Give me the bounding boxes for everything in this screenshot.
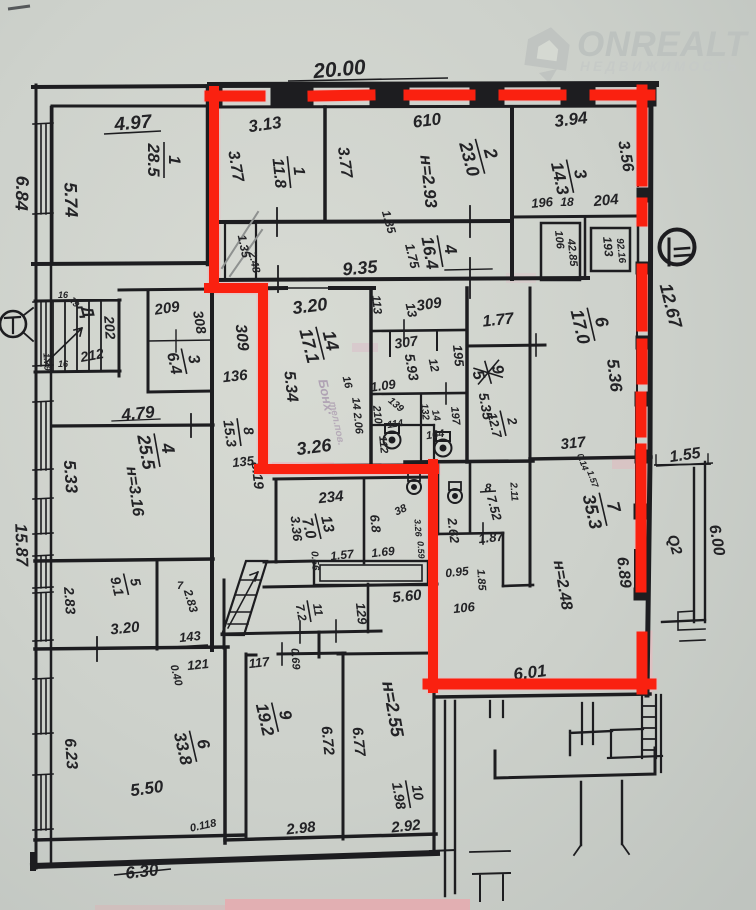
svg-text:106: 106: [452, 599, 476, 616]
svg-text:164: 164: [425, 428, 445, 442]
svg-text:2.92: 2.92: [390, 816, 422, 836]
svg-text:610: 610: [412, 109, 443, 131]
svg-text:3.26: 3.26: [412, 519, 423, 538]
svg-text:9.35: 9.35: [342, 256, 380, 279]
svg-text:НЕДВИЖИМОСТЬ: НЕДВИЖИМОСТЬ: [580, 59, 740, 74]
svg-text:1.85: 1.85: [474, 569, 488, 592]
svg-text:6.77: 6.77: [348, 726, 368, 757]
svg-text:5.33: 5.33: [60, 459, 81, 494]
svg-text:5.60: 5.60: [392, 586, 423, 606]
svg-text:193: 193: [600, 236, 616, 258]
svg-text:0.69: 0.69: [288, 648, 302, 671]
svg-text:5.36: 5.36: [603, 358, 626, 394]
svg-text:18: 18: [560, 195, 574, 209]
svg-text:234: 234: [317, 488, 345, 508]
svg-text:11.8: 11.8: [269, 157, 289, 189]
svg-text:4.79: 4.79: [120, 402, 156, 425]
svg-text:16: 16: [58, 290, 69, 300]
svg-text:1.57: 1.57: [330, 547, 356, 564]
svg-text:5.34: 5.34: [280, 370, 300, 403]
svg-text:1: 1: [290, 166, 308, 177]
svg-text:6.8: 6.8: [367, 514, 384, 534]
svg-text:143: 143: [178, 628, 202, 645]
svg-text:16: 16: [58, 359, 69, 369]
svg-text:197: 197: [448, 406, 462, 426]
svg-text:317: 317: [560, 434, 587, 454]
svg-text:204: 204: [592, 191, 620, 210]
svg-text:309: 309: [415, 294, 443, 314]
svg-text:3.94: 3.94: [553, 108, 589, 131]
svg-text:195: 195: [450, 344, 467, 368]
svg-text:6.72: 6.72: [317, 725, 337, 756]
svg-text:196: 196: [531, 194, 555, 211]
svg-text:2.83: 2.83: [61, 586, 79, 616]
svg-text:114: 114: [387, 418, 405, 431]
svg-text:2.11: 2.11: [507, 481, 519, 502]
svg-text:6.23: 6.23: [61, 738, 80, 770]
svg-text:15.87: 15.87: [11, 523, 32, 568]
svg-text:1.87: 1.87: [478, 529, 505, 547]
svg-text:7.2: 7.2: [293, 603, 310, 622]
svg-text:28.5: 28.5: [144, 142, 163, 177]
svg-text:0.59: 0.59: [415, 541, 426, 559]
svg-text:8: 8: [485, 481, 492, 495]
svg-text:1.77: 1.77: [482, 310, 516, 330]
svg-text:6.84: 6.84: [11, 175, 32, 211]
svg-text:210: 210: [370, 404, 384, 425]
svg-text:2.98: 2.98: [285, 818, 317, 838]
svg-text:2.62: 2.62: [445, 516, 463, 544]
svg-text:202: 202: [101, 314, 119, 340]
svg-text:112: 112: [376, 435, 390, 454]
svg-text:132: 132: [418, 403, 431, 421]
svg-text:3.20: 3.20: [291, 294, 328, 318]
svg-text:307: 307: [393, 332, 420, 351]
svg-text:3.36: 3.36: [288, 515, 306, 542]
svg-text:136: 136: [222, 367, 249, 387]
svg-text:106: 106: [552, 230, 566, 250]
svg-text:5.74: 5.74: [60, 182, 81, 218]
svg-text:1: 1: [165, 155, 184, 164]
svg-text:113: 113: [369, 294, 385, 315]
svg-text:129: 129: [353, 602, 370, 626]
svg-text:3.20: 3.20: [110, 618, 141, 638]
svg-text:0.95: 0.95: [445, 564, 470, 580]
svg-text:121: 121: [186, 656, 209, 673]
svg-text:1.79: 1.79: [41, 353, 52, 371]
svg-text:117: 117: [248, 654, 271, 671]
svg-text:10: 10: [409, 783, 427, 801]
svg-text:0.56: 0.56: [308, 551, 320, 572]
svg-text:1.69: 1.69: [371, 544, 396, 560]
svg-text:309: 309: [232, 323, 252, 351]
